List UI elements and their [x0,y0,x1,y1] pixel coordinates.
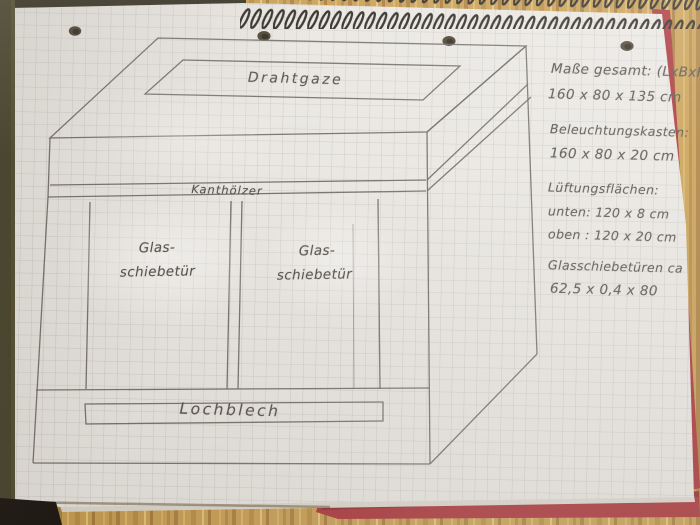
notebook-photo: Drahtgaze Kanthölzer Glas- schiebetür Gl… [0,0,700,525]
label-right-door-line2: schiebetür [262,266,367,284]
note-light-box-value: 160 x 80 x 20 cm [550,145,675,164]
punch-hole [69,26,81,36]
label-battens: Kanthölzer [182,182,272,198]
label-left-door-line1: Glas- [112,239,202,257]
punch-hole [620,41,633,51]
note-vent-bottom-value: unten: 120 x 8 cm [548,203,670,221]
left-edge-strip-highlight [11,0,15,503]
dark-object-bottom-left [0,498,62,525]
label-right-door-line1: Glas- [272,242,362,260]
label-left-door-line2: schiebetür [105,263,210,281]
spiral-binding [240,0,700,29]
note-glass-doors-value: 62,5 x 0,4 x 80 [550,281,658,300]
note-vent-areas-title: Lüftungsflächen: [548,180,659,198]
punch-hole [257,31,270,41]
